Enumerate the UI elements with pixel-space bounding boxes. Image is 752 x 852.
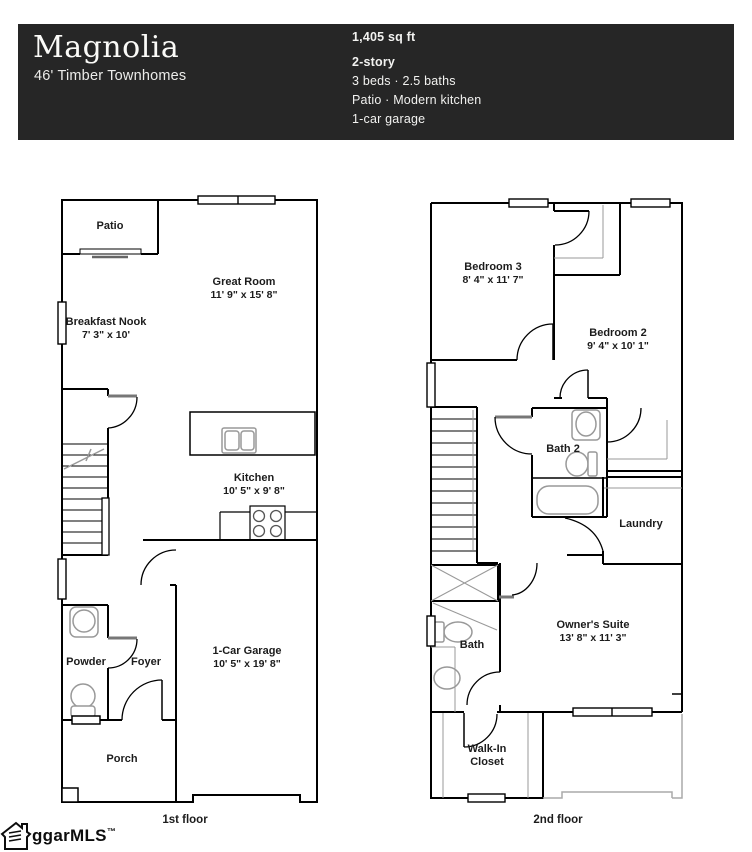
mls-logo-text: ggarMLS™ — [32, 826, 116, 846]
room-label-great-room: Great Room 11' 9" x 15' 8" — [211, 276, 278, 302]
room-label-kitchen: Kitchen 10' 5" x 9' 8" — [223, 472, 285, 498]
bedroom2-closet-door — [555, 211, 589, 245]
room-label-laundry: Laundry — [619, 518, 662, 531]
room-label-bedroom3: Bedroom 3 8' 4" x 11' 7" — [462, 261, 523, 287]
bath2-tub — [537, 486, 598, 514]
owners-suite-door — [512, 563, 537, 595]
floor1-caption: 1st floor — [162, 814, 207, 826]
floor1-windows — [58, 196, 275, 599]
room-label-bath2: Bath 2 — [546, 443, 580, 456]
stair-railing — [102, 498, 109, 555]
roof-outline — [543, 714, 682, 798]
patio-sliding-door — [80, 249, 141, 254]
room-label-bedroom2: Bedroom 2 9' 4" x 10' 1" — [587, 327, 649, 353]
house-logo-icon — [0, 820, 36, 852]
floor2-plan — [427, 199, 682, 802]
powder-sink — [70, 607, 98, 637]
kitchen-hall-door — [141, 550, 176, 585]
porch-post — [62, 788, 78, 802]
bedroom2-door — [560, 370, 588, 398]
room-label-powder: Powder — [66, 656, 106, 669]
floorplan-drawing — [0, 0, 752, 852]
floor2-caption: 2nd floor — [533, 814, 582, 826]
room-label-bath: Bath — [460, 639, 484, 652]
bath2-door — [495, 417, 532, 454]
room-label-garage: 1-Car Garage 10' 5" x 19' 8" — [212, 645, 281, 671]
floorplan-page: Magnolia 46' Timber Townhomes 1,405 sq f… — [0, 0, 752, 852]
laundry-door — [565, 518, 603, 551]
floor1-plan — [58, 196, 317, 802]
bath2-vanity — [572, 410, 600, 440]
room-label-porch: Porch — [106, 753, 137, 766]
room-label-foyer: Foyer — [131, 656, 161, 669]
stove-burners — [254, 511, 282, 537]
room-label-breakfast-nook: Breakfast Nook 7' 3" x 10' — [66, 316, 147, 342]
front-door — [122, 680, 162, 720]
bedroom3-door — [517, 324, 553, 360]
bedroom2-lower-closet-door — [607, 408, 641, 442]
room-label-owners-suite: Owner's Suite 13' 8" x 11' 3" — [557, 619, 630, 645]
understair-closet-door — [108, 397, 137, 428]
mls-logo: ggarMLS™ — [0, 820, 116, 852]
room-label-patio: Patio — [97, 220, 124, 233]
room-label-walk-in-closet: Walk-In Closet — [455, 743, 519, 769]
kitchen-sink — [222, 428, 256, 453]
owners-bath-sink — [434, 667, 460, 689]
kitchen-island — [190, 412, 315, 455]
front-step — [72, 716, 100, 724]
stairs-second-floor — [432, 419, 476, 551]
powder-toilet — [71, 684, 95, 717]
owners-bath-door — [467, 672, 500, 705]
